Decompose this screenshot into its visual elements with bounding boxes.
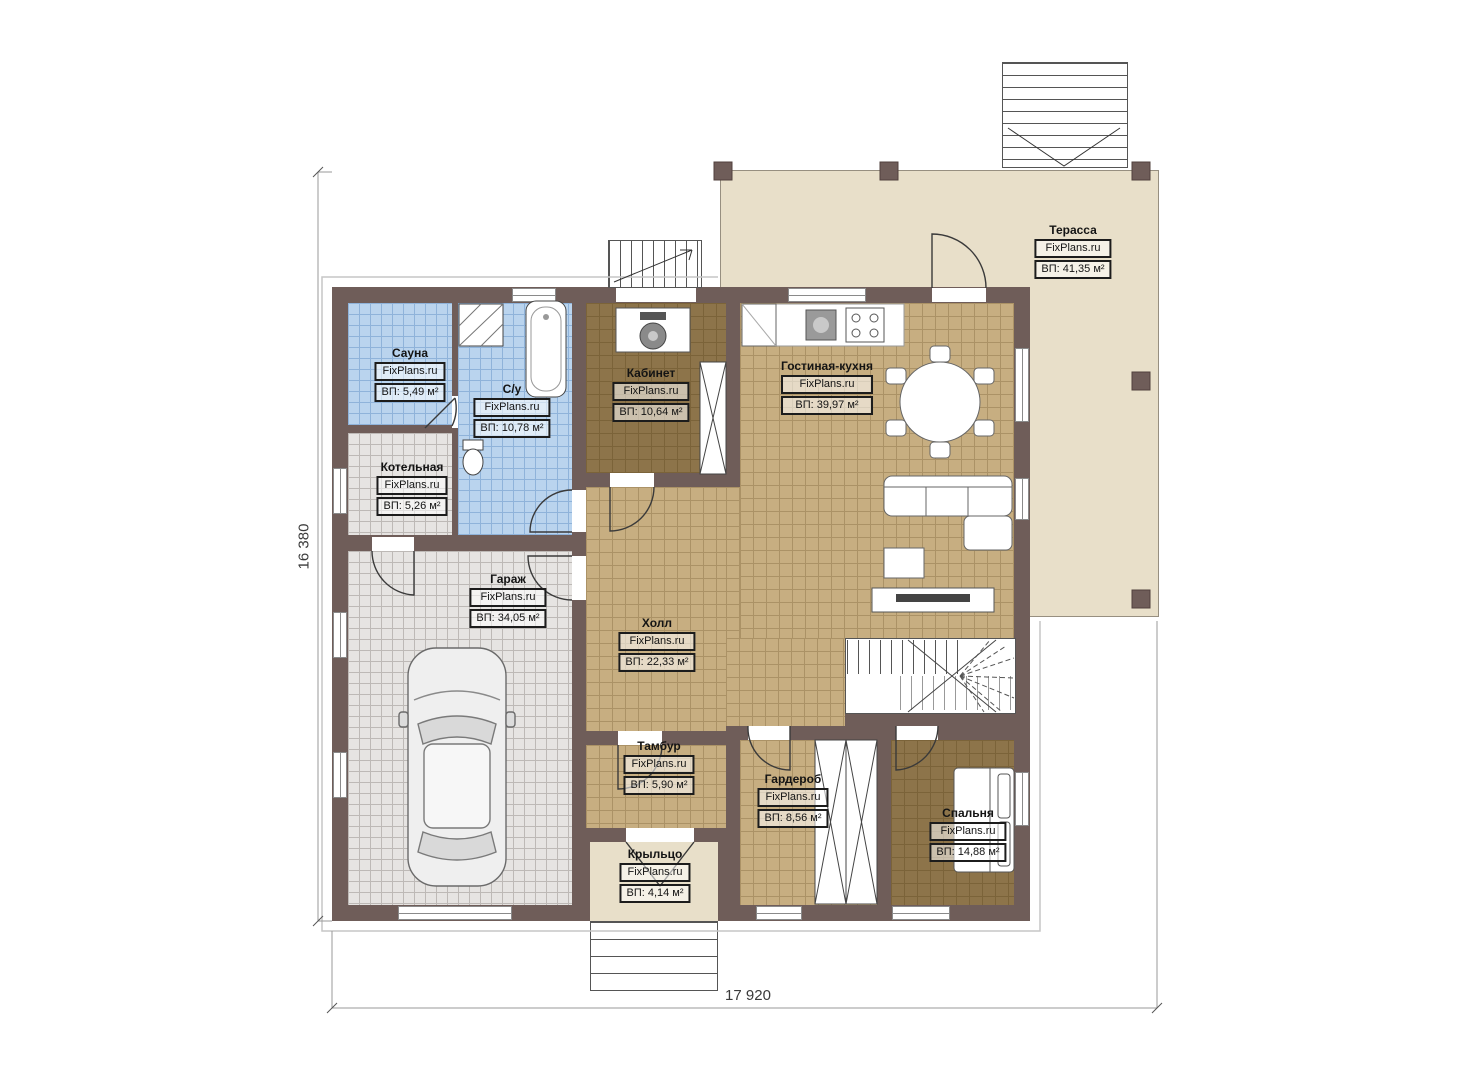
room-watermark: FixPlans.ru xyxy=(376,476,447,495)
room-area: ВП: 41,35 м² xyxy=(1034,260,1111,279)
room-area: ВП: 14,88 м² xyxy=(929,843,1006,862)
room-watermark: FixPlans.ru xyxy=(1034,239,1111,258)
terrace-stair-arrow xyxy=(1008,128,1120,166)
room-label-terrace: Терасса FixPlans.ru ВП: 41,35 м² xyxy=(1034,223,1111,279)
room-area: ВП: 5,26 м² xyxy=(376,497,447,516)
door-office xyxy=(610,487,654,531)
toilet xyxy=(463,440,483,475)
room-label-garage: Гараж FixPlans.ru ВП: 34,05 м² xyxy=(469,572,546,628)
room-name: Спальня xyxy=(929,806,1006,820)
room-name: Кабинет xyxy=(612,366,689,380)
door-sauna xyxy=(425,398,456,428)
room-name: Тамбур xyxy=(623,739,694,753)
room-area: ВП: 22,33 м² xyxy=(618,653,695,672)
room-watermark: FixPlans.ru xyxy=(623,755,694,774)
dining-table xyxy=(886,346,994,458)
room-watermark: FixPlans.ru xyxy=(619,863,690,882)
room-name: Гардероб xyxy=(757,772,828,786)
room-watermark: FixPlans.ru xyxy=(781,375,873,394)
room-watermark: FixPlans.ru xyxy=(374,362,445,381)
room-area: ВП: 5,49 м² xyxy=(374,383,445,402)
room-label-wardrobe: Гардероб FixPlans.ru ВП: 8,56 м² xyxy=(757,772,828,828)
room-area: ВП: 10,64 м² xyxy=(612,403,689,422)
room-label-bedroom: Спальня FixPlans.ru ВП: 14,88 м² xyxy=(929,806,1006,862)
car xyxy=(399,648,515,886)
door-bathroom xyxy=(530,490,572,532)
dimension-height-label: 16 380 xyxy=(296,499,313,595)
room-label-porch: Крыльцо FixPlans.ru ВП: 4,14 м² xyxy=(619,847,690,903)
room-area: ВП: 10,78 м² xyxy=(473,419,550,438)
room-name: С/у xyxy=(473,382,550,396)
room-name: Крыльцо xyxy=(619,847,690,861)
room-label-bathroom: С/у FixPlans.ru ВП: 10,78 м² xyxy=(473,382,550,438)
room-label-office: Кабинет FixPlans.ru ВП: 10,64 м² xyxy=(612,366,689,422)
shower xyxy=(459,304,503,346)
door-terrace xyxy=(932,234,986,288)
room-name: Котельная xyxy=(376,460,447,474)
room-area: ВП: 34,05 м² xyxy=(469,609,546,628)
office-desk xyxy=(616,308,690,352)
room-watermark: FixPlans.ru xyxy=(469,588,546,607)
room-label-sauna: Сауна FixPlans.ru ВП: 5,49 м² xyxy=(374,346,445,402)
office-shelf xyxy=(700,362,726,474)
dimension-width-label: 17 920 xyxy=(700,987,796,1004)
room-watermark: FixPlans.ru xyxy=(618,632,695,651)
floor-plan-canvas: Сауна FixPlans.ru ВП: 5,49 м² С/у FixPla… xyxy=(0,0,1473,1080)
room-name: Холл xyxy=(618,616,695,630)
room-area: ВП: 39,97 м² xyxy=(781,396,873,415)
stair-winder-fan xyxy=(960,640,1014,712)
room-label-living-kitchen: Гостиная-кухня FixPlans.ru ВП: 39,97 м² xyxy=(781,359,873,415)
room-watermark: FixPlans.ru xyxy=(473,398,550,417)
room-name: Терасса xyxy=(1034,223,1111,237)
room-label-vestibule: Тамбур FixPlans.ru ВП: 5,90 м² xyxy=(623,739,694,795)
room-watermark: FixPlans.ru xyxy=(929,822,1006,841)
door-wardrobe xyxy=(748,726,790,770)
stair-stringers xyxy=(908,640,996,712)
room-name: Гостиная-кухня xyxy=(781,359,873,373)
door-bedroom xyxy=(896,726,938,770)
room-area: ВП: 8,56 м² xyxy=(757,809,828,828)
room-watermark: FixPlans.ru xyxy=(757,788,828,807)
kitchen-counter xyxy=(742,304,904,346)
sofa xyxy=(884,476,1012,578)
furniture-overlay xyxy=(0,0,1473,1080)
room-label-boiler: Котельная FixPlans.ru ВП: 5,26 м² xyxy=(376,460,447,516)
room-label-hall: Холл FixPlans.ru ВП: 22,33 м² xyxy=(618,616,695,672)
room-area: ВП: 5,90 м² xyxy=(623,776,694,795)
door-boiler xyxy=(372,551,414,595)
room-watermark: FixPlans.ru xyxy=(612,382,689,401)
tv-stand xyxy=(872,588,994,612)
room-name: Сауна xyxy=(374,346,445,360)
room-name: Гараж xyxy=(469,572,546,586)
room-area: ВП: 4,14 м² xyxy=(619,884,690,903)
